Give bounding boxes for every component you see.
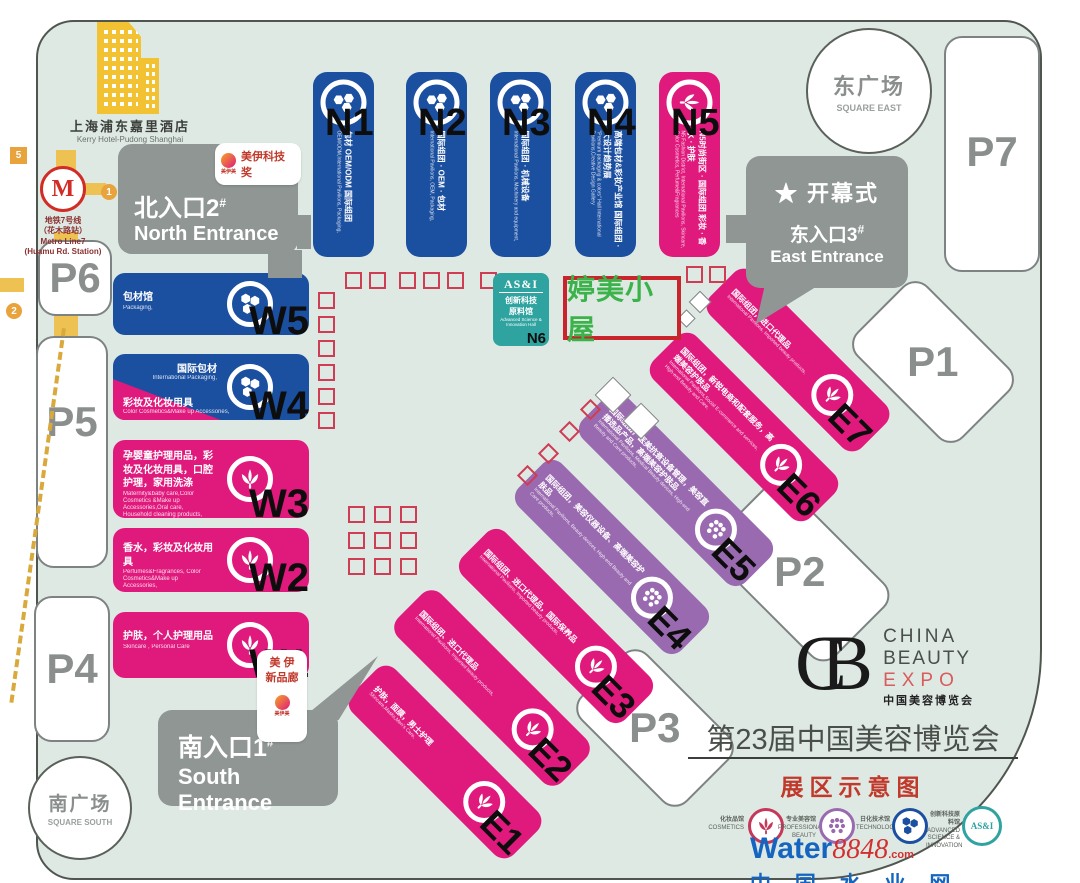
cbe-logo-mark: CB <box>795 626 873 700</box>
hall-w3: 孕婴童护理用品，彩妆及化妆用具，口腔护理，家用洗涤Maternity&baby … <box>113 440 309 518</box>
hall-n6: AS&I 创新科技 原料馆 Advanced Science & Innovat… <box>493 273 549 346</box>
hall-n3: 国际组团 · 机械设备International Pavilions, Mach… <box>490 72 551 257</box>
booth-marker <box>348 532 365 549</box>
hall-n2: 国际组团 · OEM · 包材International Pavilions, … <box>406 72 467 257</box>
booth-marker <box>709 266 726 283</box>
meiyimei-logo-icon: 美伊美 <box>257 695 307 717</box>
hotel-building-icon <box>97 22 141 114</box>
road-marker-5: 5 <box>10 147 27 164</box>
north-entrance-arm <box>268 250 302 278</box>
hall-code: N2 <box>418 104 467 142</box>
road-marker-2: 2 <box>6 303 22 319</box>
hotel-label: 上海浦东嘉里酒店 Kerry Hotel-Pudong Shanghai <box>40 116 220 144</box>
cbe-logo: CB CHINA BEAUTY EXPO 中国美容博览会 <box>795 626 974 708</box>
booth-marker <box>374 506 391 523</box>
hall-code: W4 <box>249 386 309 420</box>
hall-w4: 国际包材International Packaging, 彩妆及化妆用具Colo… <box>113 354 309 420</box>
metro-logo-icon: M <box>40 166 86 212</box>
watermark: Water8848.com 中 国 水 业 网 <box>750 832 959 883</box>
booth-marker <box>400 506 417 523</box>
booth-marker <box>345 272 362 289</box>
plaza-east: 东广场SQUARE EAST <box>806 28 932 154</box>
title-underline <box>688 757 1018 759</box>
expo-floor-map: 5 1 2 M 地铁7号线 （花木路站） Metro Line7 (Huamu … <box>0 0 1080 883</box>
hall-code: W5 <box>249 301 309 341</box>
hall-n4: 高端包材&彩妆产业馆 国际组团 · 大设计趋势展"Premium packagi… <box>575 72 636 257</box>
hall-code: N6 <box>527 330 546 347</box>
new-gallery-badge: 美 伊 新品廊 美伊美 <box>257 650 307 742</box>
hall-n1: 包材 OEM/ODM 国际组团OEM/ODM,International Pav… <box>313 72 374 257</box>
booth-marker <box>374 532 391 549</box>
highlight-box: 婷美小屋 <box>563 276 681 340</box>
road-marker-1: 1 <box>101 184 117 200</box>
map-subtitle: 展区示意图 <box>688 768 1018 802</box>
booth-marker <box>318 412 335 429</box>
legend-asi-icon: AS&I <box>962 806 1002 846</box>
hall-w2: 香水，彩妆及化妆用具Perfumes&Fragrances, Color Cos… <box>113 528 309 592</box>
metro-label: 地铁7号线 （花木路站） Metro Line7 (Huamu Rd. Stat… <box>10 216 116 258</box>
booth-marker <box>348 506 365 523</box>
booth-marker <box>400 558 417 575</box>
booth-marker <box>423 272 440 289</box>
booth-marker <box>318 292 335 309</box>
hall-code: W3 <box>249 484 309 524</box>
booth-marker <box>318 340 335 357</box>
booth-marker <box>400 532 417 549</box>
hotel-annex-icon <box>141 58 159 114</box>
booth-marker <box>318 388 335 405</box>
parking-p4: P4 <box>34 596 110 742</box>
hall-code: N5 <box>671 104 720 142</box>
plaza-south: 南广场SQUARE SOUTH <box>28 756 132 860</box>
legend-label-technology: 日化技术馆TECHNOLOGY <box>856 817 890 833</box>
booth-marker <box>374 558 391 575</box>
east-entrance: ★ 开幕式 东入口3# East Entrance <box>746 156 908 288</box>
booth-marker <box>399 272 416 289</box>
hall-code: W2 <box>249 558 309 598</box>
booth-marker <box>348 558 365 575</box>
expo-title: 第23届中国美容博览会 <box>688 716 1018 758</box>
booth-marker <box>318 316 335 333</box>
hall-w5: 包材馆Packaging, W5 <box>113 273 309 335</box>
road-segment <box>0 278 24 292</box>
hall-code: N1 <box>325 104 374 142</box>
north-entrance-arm <box>297 215 311 249</box>
booth-marker <box>447 272 464 289</box>
tech-award-badge: 美伊美 美伊科技奖 <box>215 143 301 185</box>
legend-label-cosmetics: 化妆品馆COSMETICS <box>698 817 744 833</box>
east-entrance-arm <box>726 215 748 243</box>
meiyimei-logo-icon: 美伊美 <box>221 153 236 175</box>
booth-marker <box>686 266 703 283</box>
hall-n5: N5时尚街区 · 国际组团 彩妆 · 香水 · 护肤N5 Fashion Dis… <box>659 72 720 257</box>
south-entrance: 南入口1# South Entrance <box>158 710 338 806</box>
hall-code: N4 <box>587 104 636 142</box>
booth-marker <box>369 272 386 289</box>
booth-marker <box>318 364 335 381</box>
hall-code: N3 <box>502 104 551 142</box>
parking-p7: P7 <box>944 36 1040 272</box>
